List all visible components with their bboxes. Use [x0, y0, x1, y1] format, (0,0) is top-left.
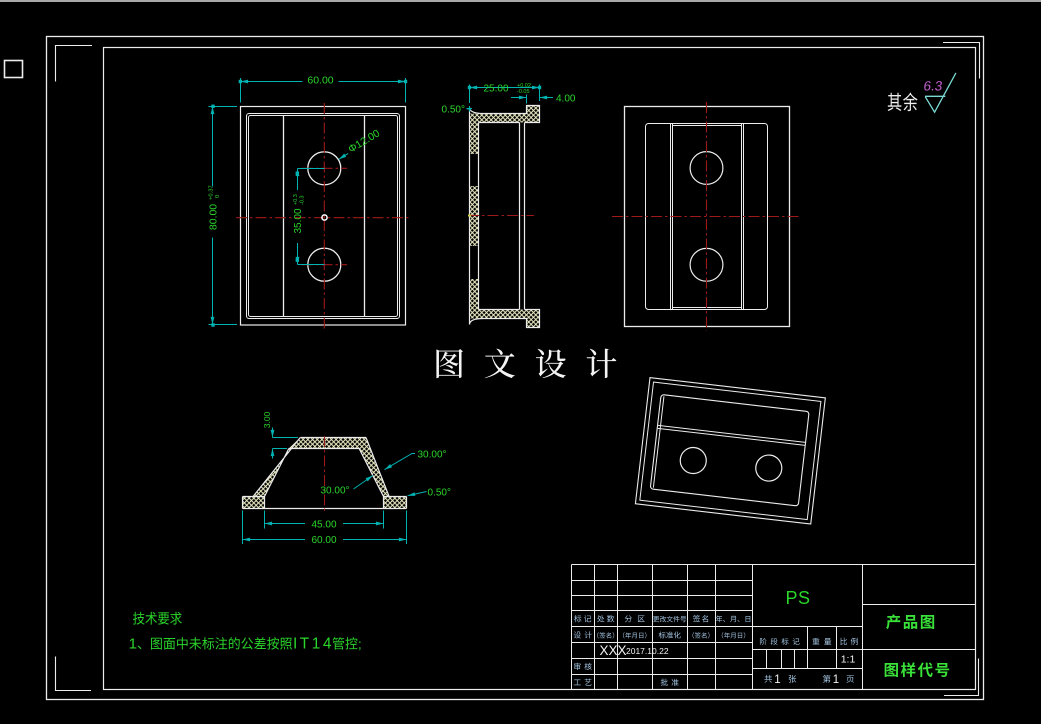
svg-text:0.50°: 0.50° [442, 104, 465, 115]
svg-text:4.00: 4.00 [556, 93, 576, 104]
svg-text:1: 1 [129, 636, 137, 653]
svg-text:1: 1 [833, 674, 839, 686]
svg-text:IT14: IT14 [293, 636, 334, 653]
svg-text:80.00: 80.00 [208, 204, 220, 230]
svg-text:+0.37: +0.37 [209, 185, 215, 200]
svg-text:3.00: 3.00 [262, 411, 272, 428]
svg-text:30.00°: 30.00° [418, 450, 447, 461]
svg-text:1:1: 1:1 [841, 654, 856, 666]
svg-text:-0.05: -0.05 [517, 89, 530, 95]
svg-text:2017.10.22: 2017.10.22 [626, 646, 669, 656]
svg-text:PS: PS [785, 588, 810, 608]
svg-text:+0.3: +0.3 [293, 194, 299, 205]
svg-text:XXX: XXX [599, 643, 626, 658]
svg-text:60.00: 60.00 [311, 535, 336, 546]
svg-text:-0.3: -0.3 [300, 196, 306, 205]
svg-text:0.50°: 0.50° [428, 488, 451, 499]
svg-text:60.00: 60.00 [307, 75, 333, 87]
svg-text:25.00: 25.00 [484, 83, 509, 94]
svg-text:;: ; [358, 637, 362, 652]
svg-text:0: 0 [215, 195, 221, 198]
svg-text:6.3: 6.3 [923, 79, 944, 94]
svg-text:1: 1 [774, 674, 780, 686]
svg-text:30.00°: 30.00° [321, 485, 350, 496]
svg-text:35.00: 35.00 [293, 208, 304, 233]
svg-text:45.00: 45.00 [311, 519, 336, 530]
